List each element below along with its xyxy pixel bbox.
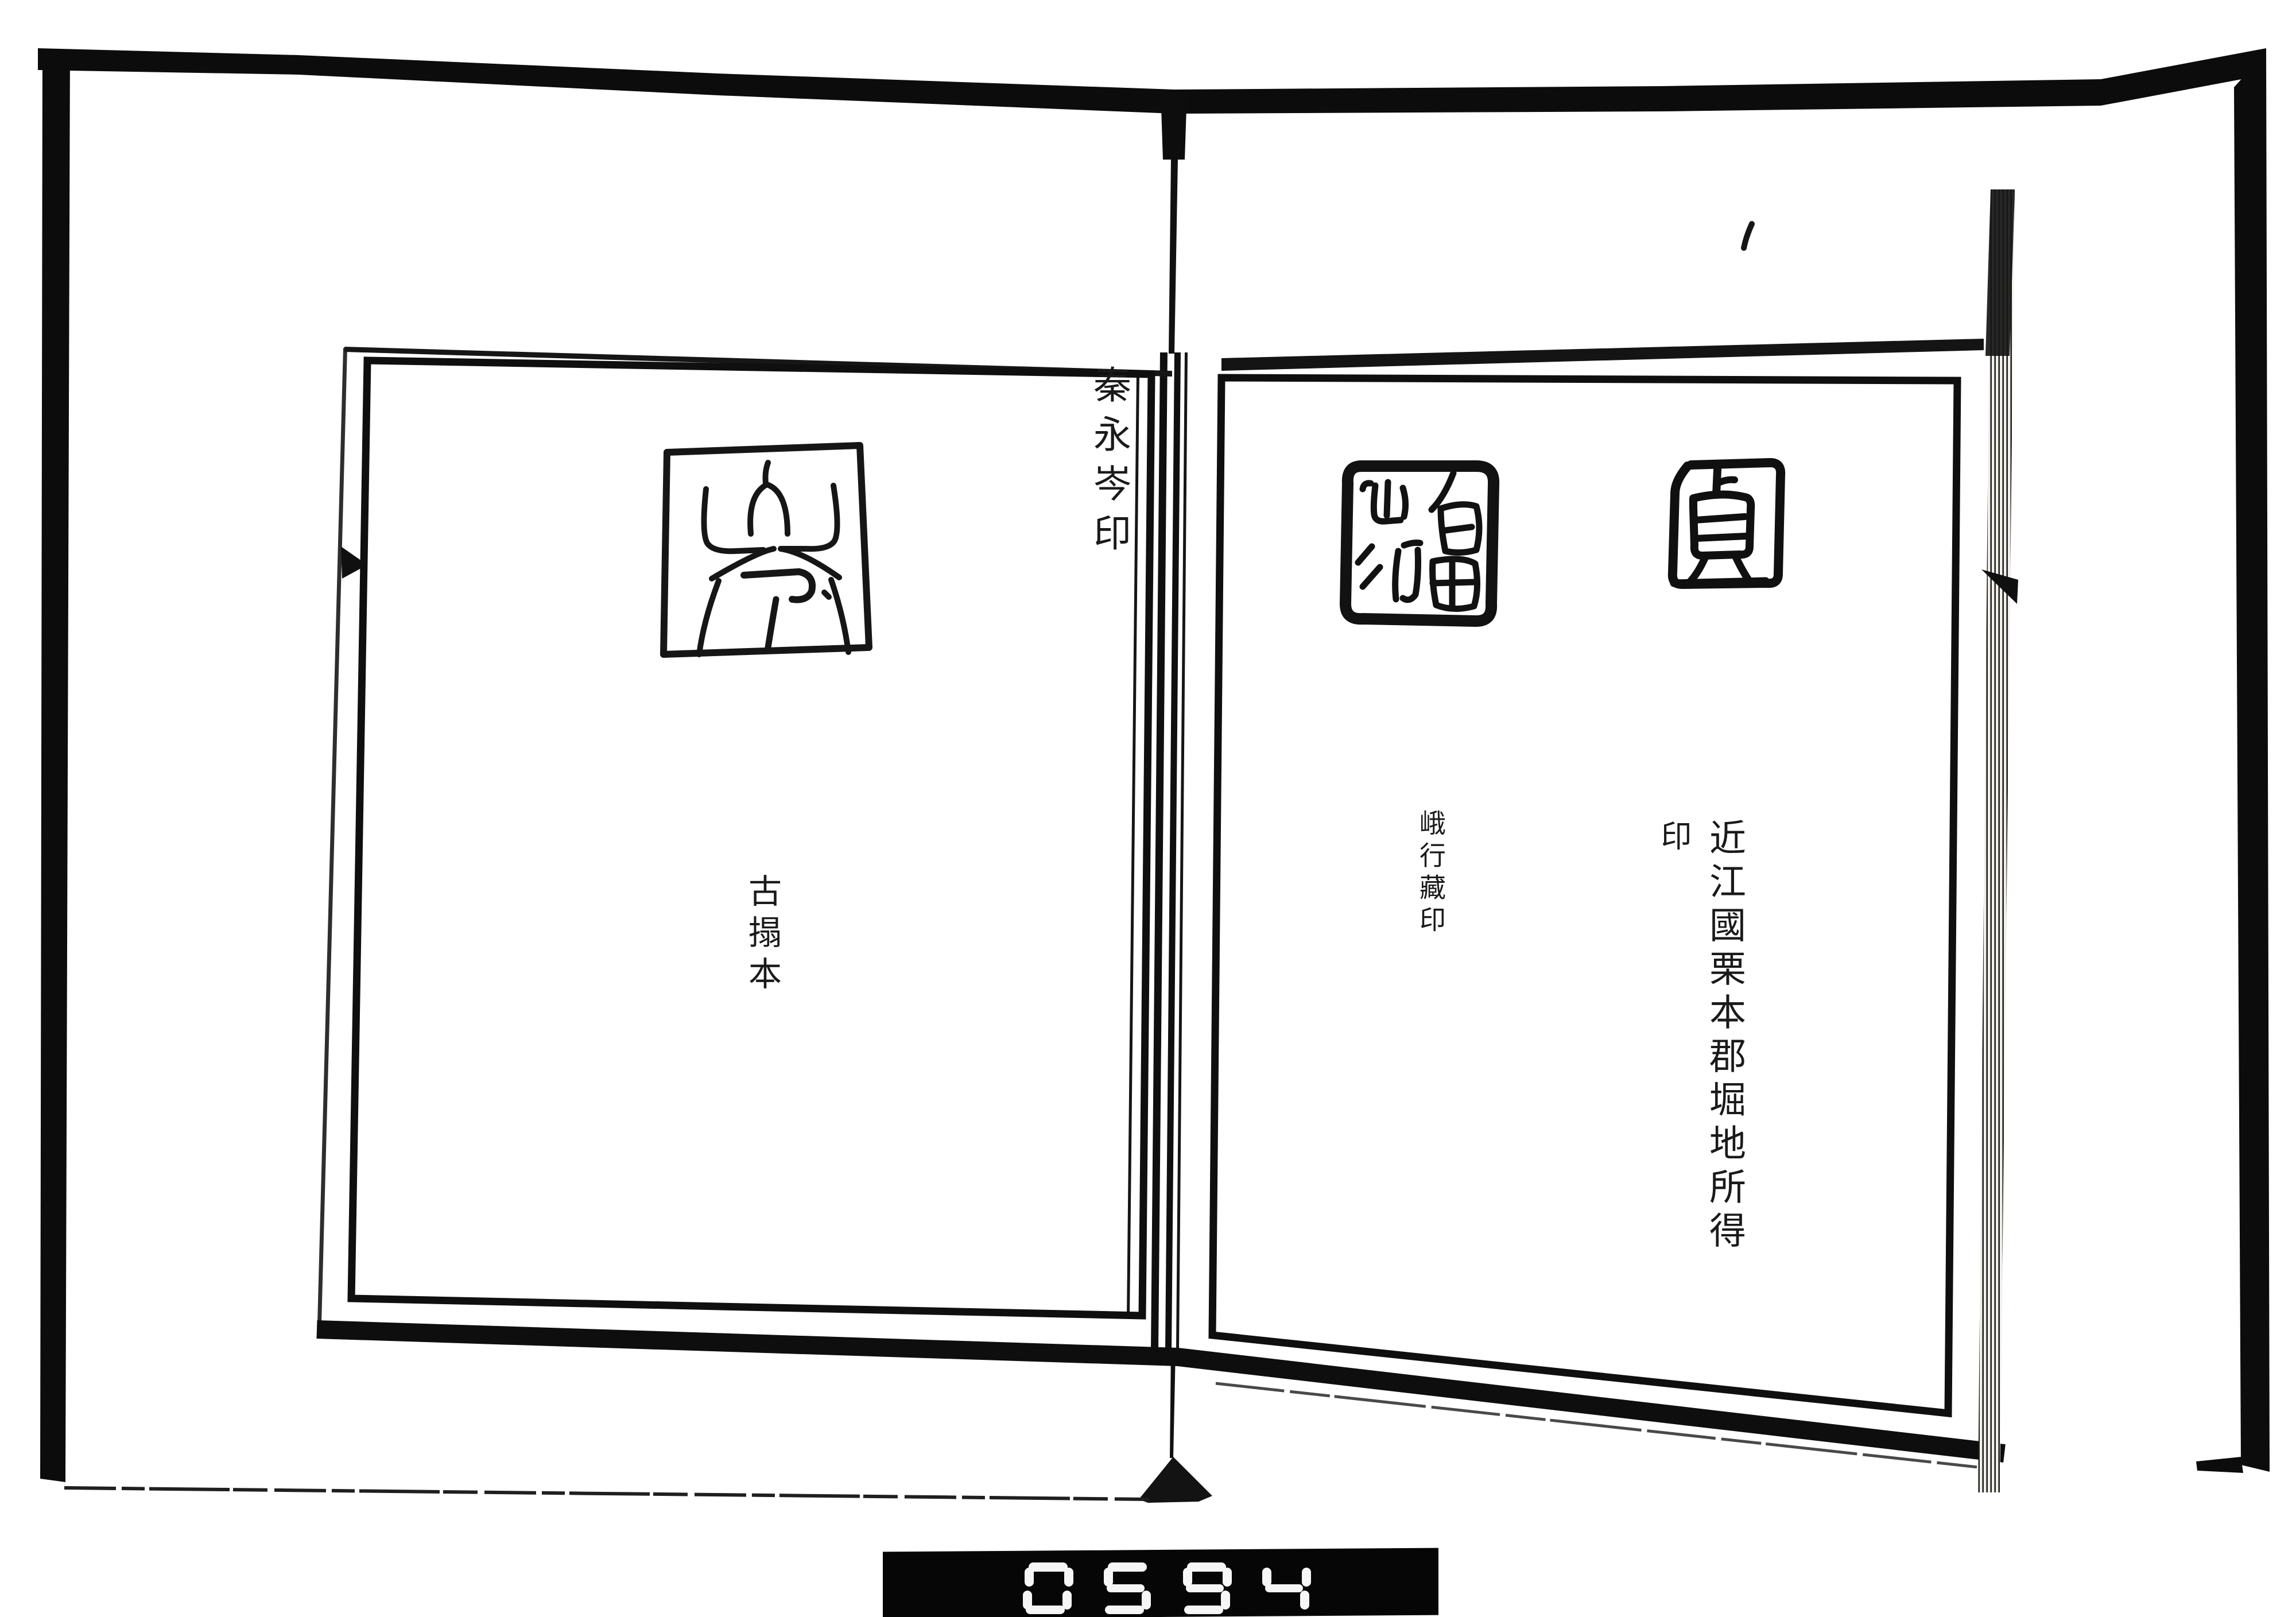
spine-upper-line bbox=[1169, 160, 1178, 354]
spine-bottom-tab bbox=[1139, 1457, 1212, 1503]
fore-edge-strip bbox=[1978, 189, 2015, 1492]
right-page-provenance-continuation: 印 bbox=[1651, 820, 1696, 856]
bottom-back-edge-left bbox=[64, 1488, 1149, 1499]
left-page-note: 古搨本 bbox=[738, 874, 786, 998]
seal-sketch-cen bbox=[664, 445, 869, 654]
right-page-collection-note: 峨行藏印 bbox=[1412, 809, 1450, 938]
frame-counter-bar bbox=[883, 1548, 1438, 1617]
seal-sketch-tei bbox=[1673, 463, 1781, 584]
spine-top-tab bbox=[1161, 91, 1187, 160]
book-scan-page: 秦永岑印 古搨本 近江國栗本郡堀地所得 印 峨行藏印 bbox=[0, 0, 2296, 1617]
left-sheet-left-edge bbox=[317, 348, 347, 1324]
spine-lower-line bbox=[1170, 1350, 1176, 1458]
seal-sketch-collector bbox=[1345, 466, 1494, 621]
right-page-frame bbox=[1212, 378, 1957, 1413]
right-sheet-top-edge bbox=[1221, 339, 1984, 371]
scan-right-border bbox=[2234, 52, 2270, 1472]
scan-left-border bbox=[40, 49, 70, 1482]
scan-graphics bbox=[0, 0, 2296, 1617]
scan-top-border bbox=[38, 48, 2266, 114]
ink-mark bbox=[1744, 224, 1752, 248]
left-page-seal-caption: 秦永岑印 bbox=[1081, 365, 1137, 563]
right-page-provenance-column: 近江國栗本郡堀地所得 bbox=[1698, 819, 1751, 1255]
bottom-back-edge-right bbox=[1216, 1383, 1999, 1469]
scan-right-border-foot bbox=[2196, 1457, 2243, 1473]
